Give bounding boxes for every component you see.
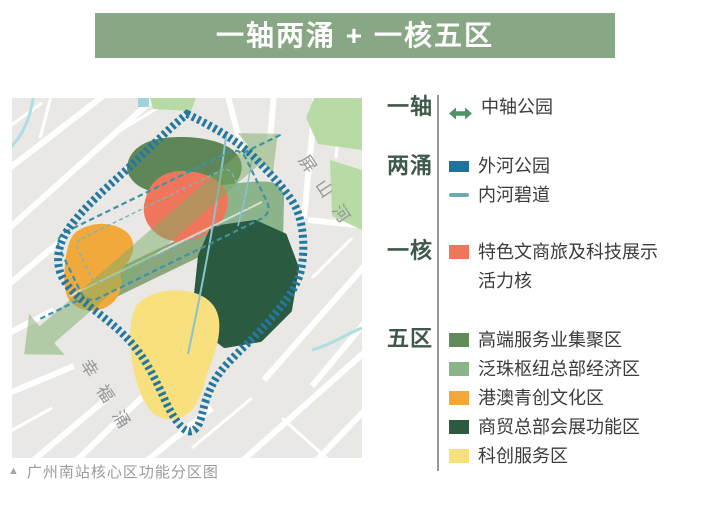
legend-label: 港澳青创文化区 [478, 385, 604, 411]
high-end-services-swatch [449, 333, 469, 347]
legend-label: 外河公园 [478, 153, 550, 179]
sci-innovation-swatch [449, 449, 469, 463]
hk-macao-youth-swatch [449, 391, 469, 405]
caption-triangle-icon: ▲ [8, 466, 20, 477]
legend-item-pan-pearl-hq: 泛珠枢纽总部经济区 [449, 356, 640, 382]
outer-river-swatch [449, 161, 469, 172]
double-arrow-icon [449, 101, 472, 114]
map-caption: ▲ 广州南站核心区功能分区图 [8, 461, 348, 482]
legend-divider [437, 95, 439, 471]
legend-item-high-end-services: 高端服务业集聚区 [449, 327, 622, 353]
legend-category-core: 一核 [375, 237, 433, 265]
legend-label: 中轴公园 [481, 94, 553, 120]
title-banner: 一轴两涌 + 一核五区 [95, 13, 615, 58]
plan-map-canvas: 屏山河 幸福涌 [12, 98, 362, 458]
legend-item-sci-innovation: 科创服务区 [449, 443, 568, 469]
legend-label: 商贸总部会展功能区 [478, 414, 640, 440]
legend-item-central-axis-park: 中轴公园 [449, 94, 553, 120]
plan-map: 屏山河 幸福涌 [12, 98, 362, 458]
inner-greenway-swatch [449, 193, 469, 197]
legend-item-outer-river-park: 外河公园 [449, 153, 550, 179]
legend-label: 科创服务区 [478, 443, 568, 469]
legend-label: 泛珠枢纽总部经济区 [478, 356, 640, 382]
core-zone-swatch [449, 245, 469, 259]
caption-text: 广州南站核心区功能分区图 [27, 461, 219, 482]
legend-label: 高端服务业集聚区 [478, 327, 622, 353]
pan-pearl-hq-swatch [449, 362, 469, 376]
page: 一轴两涌 + 一核五区 [0, 0, 709, 530]
legend-item-inner-greenway: 内河碧道 [449, 182, 550, 208]
legend-label: 特色文商旅及科技展示活力核 [478, 238, 666, 296]
legend-label: 内河碧道 [478, 182, 550, 208]
commerce-expo-swatch [449, 420, 469, 434]
legend-category-districts: 五区 [375, 325, 433, 353]
water-patch [138, 98, 149, 107]
legend-category-axis: 一轴 [375, 93, 433, 121]
legend-item-commerce-expo: 商贸总部会展功能区 [449, 414, 640, 440]
legend-item-core-zone: 特色文商旅及科技展示活力核 [449, 238, 666, 296]
legend-item-hk-macao-youth: 港澳青创文化区 [449, 385, 604, 411]
legend: 一轴 两涌 一核 五区 中轴公园 外河公园 内河碧道 特色文商旅及科技展示活力核 [375, 93, 707, 475]
legend-category-channels: 两涌 [375, 152, 433, 180]
